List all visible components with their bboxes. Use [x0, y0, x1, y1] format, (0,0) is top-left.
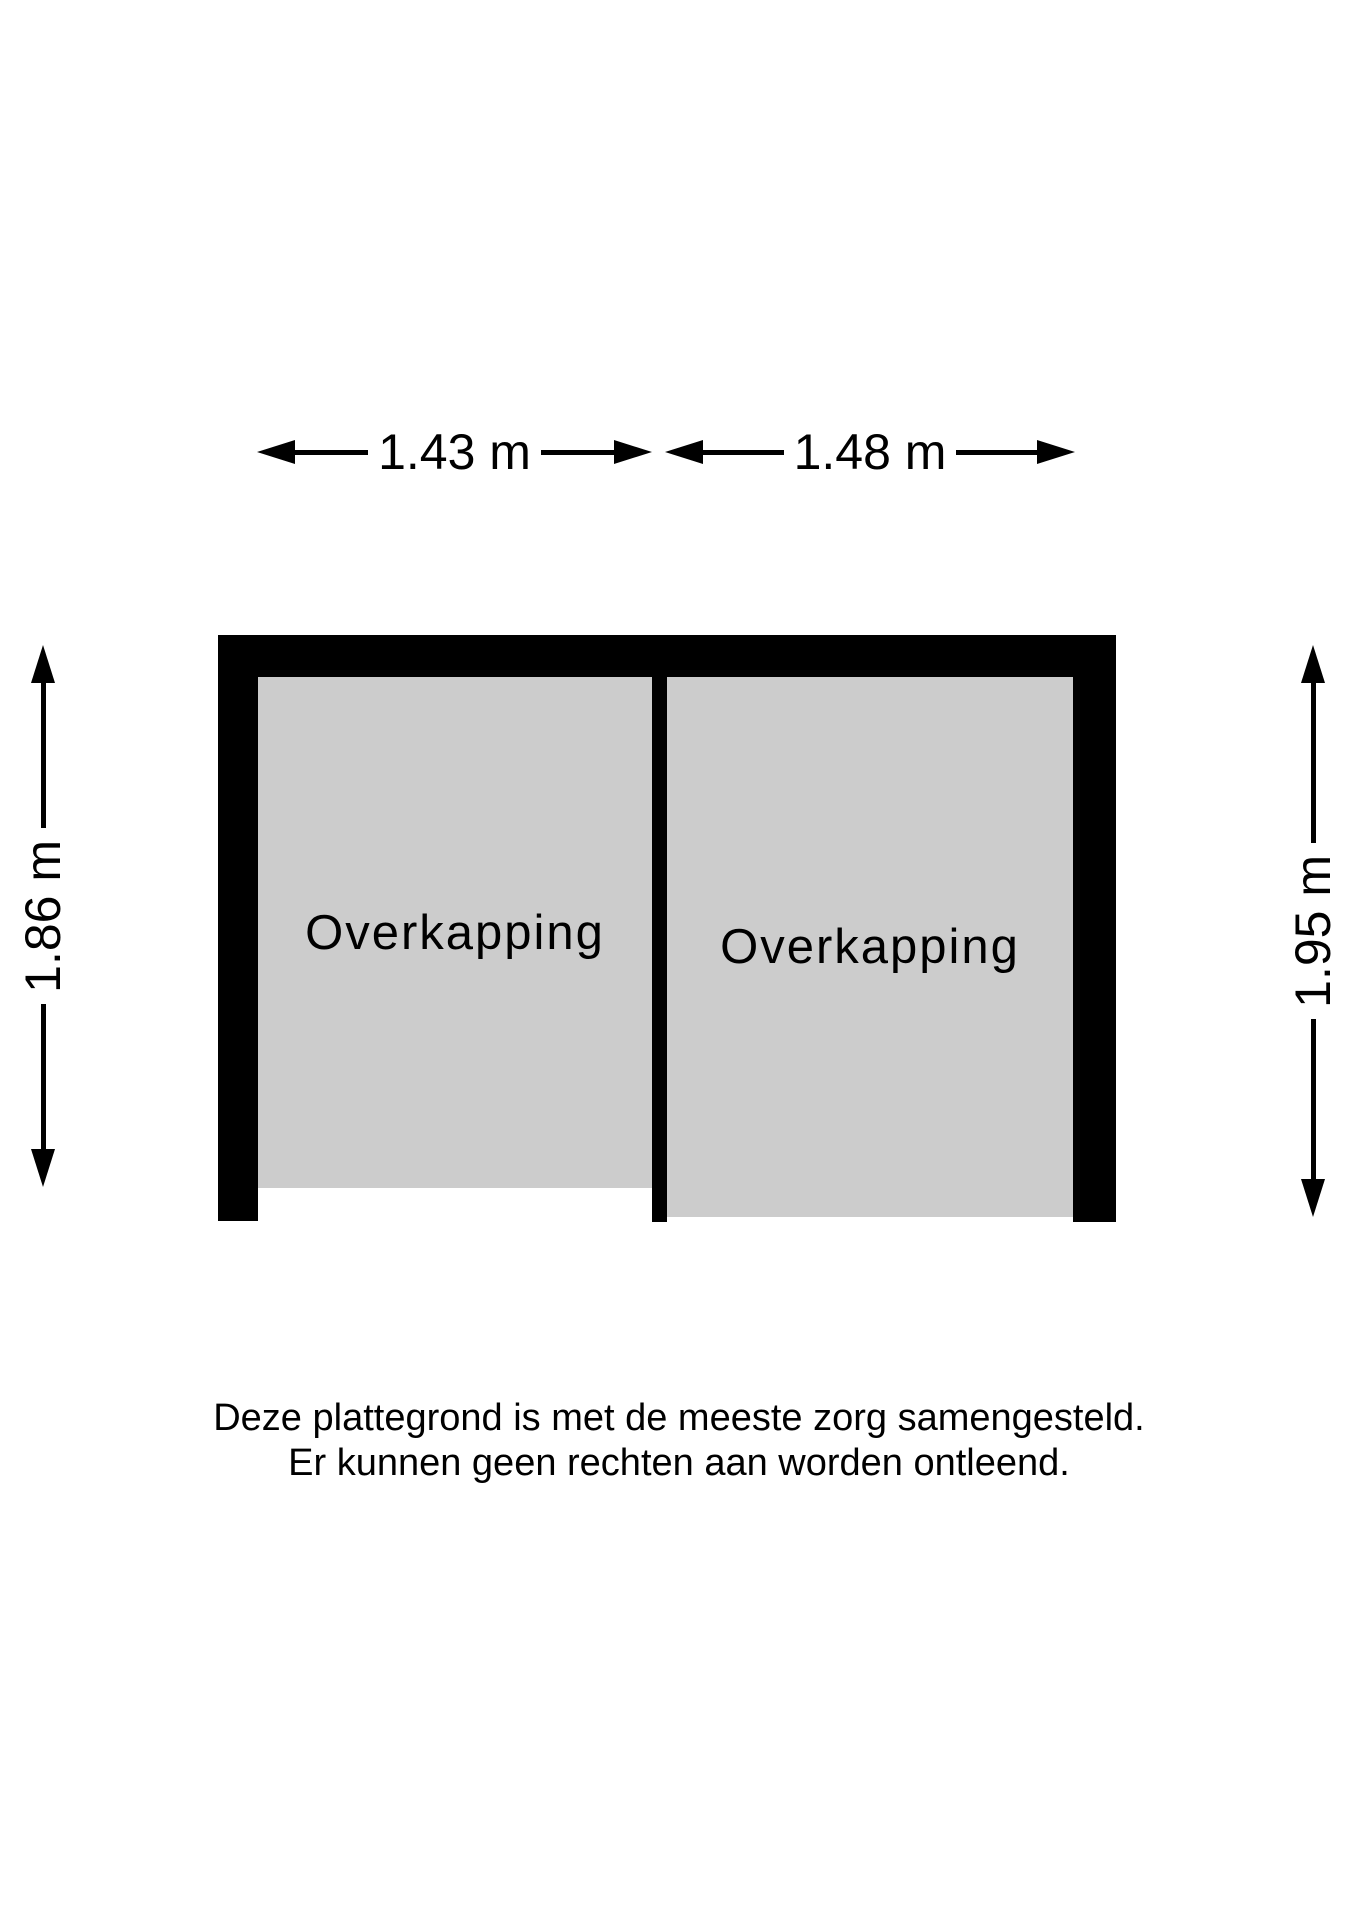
room-overkapping-left: Overkapping — [258, 677, 652, 1188]
dimension-label: 1.43 m — [368, 423, 541, 481]
wall-left — [218, 635, 258, 1221]
wall-divider — [652, 677, 667, 1222]
dimension-label: 1.86 m — [14, 828, 72, 1005]
arrow-right-icon — [1037, 440, 1075, 464]
wall-top — [218, 635, 1116, 677]
dimension-label: 1.95 m — [1284, 843, 1342, 1020]
dimension-line — [956, 450, 1037, 455]
dimension-line — [1311, 683, 1316, 843]
arrow-down-icon — [31, 1149, 55, 1187]
disclaimer-line-2: Er kunnen geen rechten aan worden ontlee… — [0, 1441, 1358, 1486]
floorplan-canvas: 1.43 m 1.48 m 1.86 m 1.95 m Overkapping … — [0, 0, 1358, 1920]
dimension-line — [1311, 1019, 1316, 1179]
dimension-left: 1.86 m — [11, 645, 75, 1187]
disclaimer-text: Deze plattegrond is met de meeste zorg s… — [0, 1396, 1358, 1486]
dimension-line — [41, 683, 46, 828]
arrow-left-icon — [665, 440, 703, 464]
dimension-line — [295, 450, 368, 455]
dimension-line — [541, 450, 614, 455]
arrow-up-icon — [1301, 645, 1325, 683]
arrow-right-icon — [614, 440, 652, 464]
dimension-line — [703, 450, 784, 455]
wall-right — [1073, 635, 1116, 1222]
arrow-down-icon — [1301, 1179, 1325, 1217]
arrow-left-icon — [257, 440, 295, 464]
arrow-up-icon — [31, 645, 55, 683]
room-label: Overkapping — [720, 919, 1020, 975]
dimension-right: 1.95 m — [1281, 645, 1345, 1217]
dimension-line — [41, 1004, 46, 1149]
room-label: Overkapping — [305, 905, 605, 961]
dimension-label: 1.48 m — [784, 423, 957, 481]
dimension-top-right: 1.48 m — [665, 422, 1075, 482]
room-overkapping-right: Overkapping — [667, 677, 1073, 1217]
dimension-top-left: 1.43 m — [257, 422, 652, 482]
disclaimer-line-1: Deze plattegrond is met de meeste zorg s… — [0, 1396, 1358, 1441]
